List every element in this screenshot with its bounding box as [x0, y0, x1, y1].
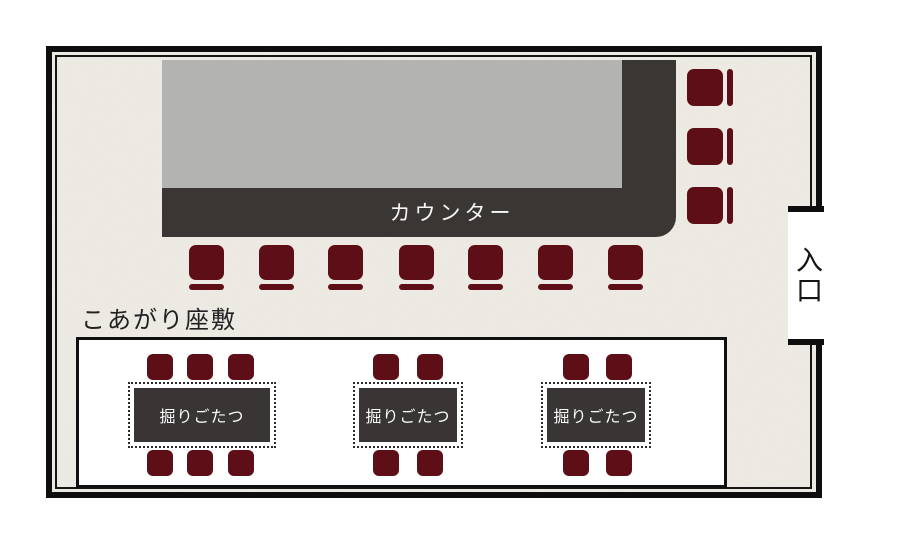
- zashiki-seat: [373, 450, 399, 476]
- horigotatsu-table-top: 掘りごたつ: [134, 388, 270, 442]
- zashiki-seat: [563, 354, 589, 380]
- entrance-door-frame-top: [788, 206, 824, 212]
- counter-stool: [259, 245, 294, 280]
- entrance-label: 入口: [788, 246, 824, 306]
- zashiki-seat: [606, 354, 632, 380]
- entrance-door-frame-bottom: [788, 339, 824, 345]
- zashiki-seat: [228, 450, 254, 476]
- counter-stool-right: [687, 128, 723, 165]
- zashiki-seat: [563, 450, 589, 476]
- zashiki-seat: [417, 354, 443, 380]
- entrance-area: 入口: [788, 212, 824, 339]
- counter-stool: [608, 245, 643, 280]
- zashiki-seat: [228, 354, 254, 380]
- horigotatsu-table-top: 掘りごたつ: [547, 388, 645, 442]
- horigotatsu-table: 掘りごたつ: [353, 382, 463, 448]
- counter-surface: [162, 60, 622, 188]
- horigotatsu-table: 掘りごたつ: [128, 382, 276, 448]
- counter-stool: [468, 245, 503, 280]
- horigotatsu-table-top: 掘りごたつ: [359, 388, 457, 442]
- table-label: 掘りごたつ: [365, 403, 450, 427]
- floor-plan: カウンター こあがり座敷 掘りごたつ 掘りごたつ 掘りごたつ: [0, 0, 900, 548]
- zashiki-label: こあがり座敷: [81, 300, 237, 335]
- counter-stool: [538, 245, 573, 280]
- horigotatsu-table: 掘りごたつ: [541, 382, 651, 448]
- table-label: 掘りごたつ: [159, 403, 244, 427]
- zashiki-seat: [147, 450, 173, 476]
- zashiki-seat: [187, 354, 213, 380]
- counter-stool-right: [687, 187, 723, 224]
- table-label: 掘りごたつ: [553, 403, 638, 427]
- counter-stool: [189, 245, 224, 280]
- zashiki-seat: [606, 450, 632, 476]
- zashiki-seat: [373, 354, 399, 380]
- counter-label: カウンター: [340, 201, 564, 225]
- counter-stool: [399, 245, 434, 280]
- zashiki-seat: [147, 354, 173, 380]
- zashiki-seat: [187, 450, 213, 476]
- counter-stool-right: [687, 69, 723, 106]
- zashiki-seat: [417, 450, 443, 476]
- counter-stool: [328, 245, 363, 280]
